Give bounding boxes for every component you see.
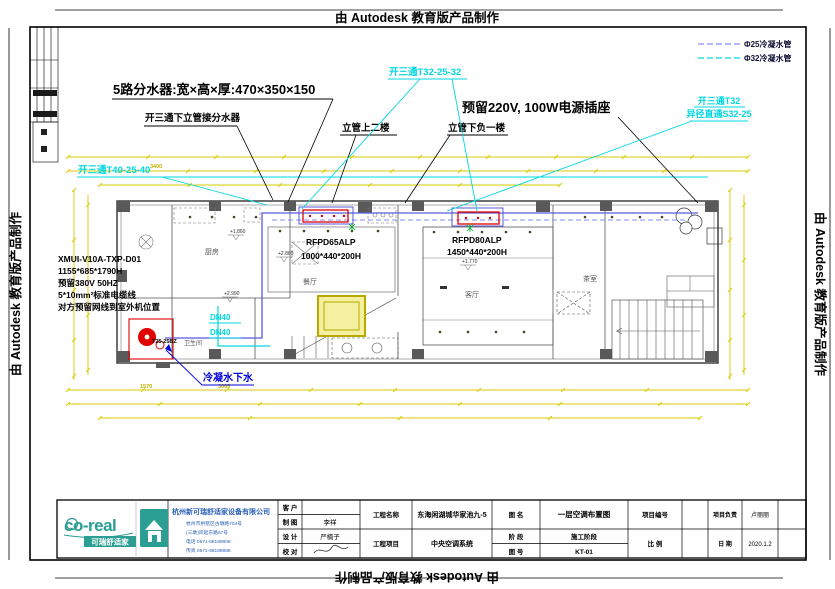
floor-plan-walls [117, 201, 722, 368]
note-line-2: 1155*685*1790H [58, 266, 122, 276]
field-date-value: 2020.1.2 [748, 542, 772, 548]
dimension-lines [66, 155, 750, 420]
strip-char-blob [41, 129, 47, 135]
callout-tee-t40: 开三通T40-25-40 [78, 165, 150, 176]
callout-riser-down: 立管下负一楼 [448, 122, 506, 134]
signature-scribble [314, 545, 348, 553]
field-drawing-no-value: KT-01 [575, 549, 593, 556]
field-design-value: 严楠子 [320, 532, 340, 541]
watermark-top: 由 Autodesk 教育版产品制作 [335, 10, 499, 25]
level-value: +2.990 [224, 291, 240, 297]
field-client-label: 客 户 [282, 503, 298, 512]
field-scale-label: 比 例 [648, 539, 663, 548]
stairs-right [612, 300, 703, 359]
note-line-4: 5*10mm²标准电缆线 [58, 290, 136, 300]
level-value: +1.860 [230, 229, 246, 235]
field-draft-value: 李祥 [324, 518, 338, 527]
field-stage-label: 阶 段 [509, 532, 524, 541]
indoor-unit-1-outline [303, 210, 348, 222]
strip-text-blob [33, 90, 57, 96]
dim-top-1: 3400 [150, 164, 162, 170]
callout-riser-up: 立管上二楼 [342, 122, 390, 134]
field-project-item-label: 工程项目 [373, 539, 399, 548]
watermark-right: 由 Autodesk 教育版产品制作 [813, 212, 828, 376]
field-lead-label: 项目负责 [713, 511, 737, 519]
legend-label-phi25: Φ25冷凝水管 [744, 39, 791, 49]
title-block: co-real 可瑞舒适家 杭州新可瑞舒适家设备有限公司 杭州市拱墅区古墩路70… [57, 500, 806, 558]
table-highlight [318, 296, 365, 336]
field-draft-label: 制 图 [283, 518, 298, 527]
pipe-legend: Φ25冷凝水管 Φ32冷凝水管 [698, 39, 791, 63]
legend-label-phi32: Φ32冷凝水管 [744, 53, 791, 63]
unit2-model: RFPD80ALP [452, 235, 502, 245]
project-fields: 工程名称 东海闲湖城华家池九-5 工程项目 中央空调系统 图 名 一层空调布置图… [373, 509, 772, 556]
field-project-name-value: 东海闲湖城华家池九-5 [417, 510, 486, 519]
room-tea: 茶室 [583, 274, 597, 283]
field-project-item-value: 中央空调系统 [431, 539, 473, 548]
field-drawing-no-label: 图 号 [509, 547, 524, 556]
strip-text-blob [33, 111, 57, 117]
field-project-no-label: 项目编号 [642, 510, 669, 519]
label-dn40-b: DN40 [210, 328, 231, 337]
unit-labels: RFPD65ALP 1000*440*200H RFPD80ALP 1450*4… [301, 235, 507, 261]
field-date-label: 日 期 [718, 540, 732, 548]
company-line-4: 传真 0571-88188888 [186, 547, 231, 554]
field-lead-value: 卢丽丽 [751, 511, 769, 519]
note-line-5: 对方预留网线到室外机位置 [58, 302, 161, 312]
field-drawing-name-label: 图 名 [509, 510, 524, 519]
logo-subtext: 可瑞舒适家 [91, 537, 129, 547]
green-valve-marks [349, 223, 473, 232]
furniture-mark [502, 286, 509, 289]
room-living: 客厅 [465, 290, 479, 299]
callout-tee-t32-right-1: 开三通T32 [698, 95, 741, 106]
field-stage-value: 施工阶段 [571, 532, 598, 541]
unit1-size: 1000*440*200H [301, 251, 361, 261]
callout-tee-t32-right-2: 异径直通S32-25 [686, 108, 751, 119]
level-value: +1.770 [462, 259, 478, 265]
strip-char-blob [41, 146, 47, 152]
label-dn40-a: DN40 [210, 313, 231, 322]
callout-tee-t32: 开三通T32-25-32 [389, 67, 461, 78]
cad-drawing: 由 Autodesk 教育版产品制作 由 Autodesk 教育版产品制作 由 … [0, 0, 835, 589]
company-name: 杭州新可瑞舒适家设备有限公司 [172, 507, 270, 516]
field-check-label: 校 对 [283, 547, 298, 556]
field-drawing-name-value: 一层空调布置图 [558, 509, 611, 519]
level-value: +2.860 [278, 251, 294, 257]
callout-drain: 冷凝水下水 [203, 371, 254, 384]
watermark-left: 由 Autodesk 教育版产品制作 [8, 212, 23, 376]
drawing-sheet: 由 Autodesk 教育版产品制作 由 Autodesk 教育版产品制作 由 … [0, 0, 835, 589]
callout-tee-branch: 开三通下立管接分水器 [145, 112, 241, 124]
arrowhead [165, 344, 172, 352]
revision-strip [30, 27, 58, 162]
furniture-mark [440, 286, 447, 289]
company-line-2: (三墩)风起东路67号 [186, 529, 228, 536]
unit1-model: RFPD65ALP [306, 237, 356, 247]
room-kitchen: 厨房 [205, 247, 219, 256]
watermark-bottom: 由 Autodesk 教育版产品制作 [335, 570, 499, 585]
coreal-logo: co-real 可瑞舒适家 [64, 509, 168, 547]
room-bath: 卫生间 [184, 339, 202, 347]
tea-room-door [557, 292, 590, 314]
room-labels: 厨房 餐厅 客厅 茶室 卫生间 [184, 247, 597, 347]
dim-bottom-1: 1570 [140, 384, 152, 390]
note-line-3: 预留380V 50HZ [58, 278, 118, 288]
house-icon [140, 509, 168, 547]
field-project-name-label: 工程名称 [373, 510, 400, 519]
field-design-label: 设 计 [283, 532, 298, 541]
unit2-size: 1450*440*200H [447, 247, 507, 257]
signoff-fields: 客 户 制 图 李祥 设 计 严楠子 校 对 [282, 503, 348, 556]
indoor-unit-2-outline [458, 212, 499, 224]
note-line-1: XMUI-V10A-TXP-D01 [58, 254, 141, 264]
downlight-dots [189, 216, 664, 334]
company-info: 杭州新可瑞舒适家设备有限公司 杭州市拱墅区古墩路704号 (三墩)风起东路67号… [172, 507, 270, 554]
pipe-tag: T25-25BZ [152, 339, 177, 345]
outdoor-unit-note: XMUI-V10A-TXP-D01 1155*685*1790H 预留380V … [58, 254, 161, 312]
callout-manifold: 5路分水器:宽×高×厚:470×350×150 [113, 82, 315, 97]
company-line-1: 杭州市拱墅区古墩路704号 [186, 520, 242, 527]
wall-columns [117, 201, 718, 368]
room-dining: 餐厅 [303, 277, 317, 286]
company-line-3: 电话 0571-88188808 [186, 538, 231, 545]
callout-power-socket: 预留220V, 100W电源插座 [462, 100, 610, 115]
